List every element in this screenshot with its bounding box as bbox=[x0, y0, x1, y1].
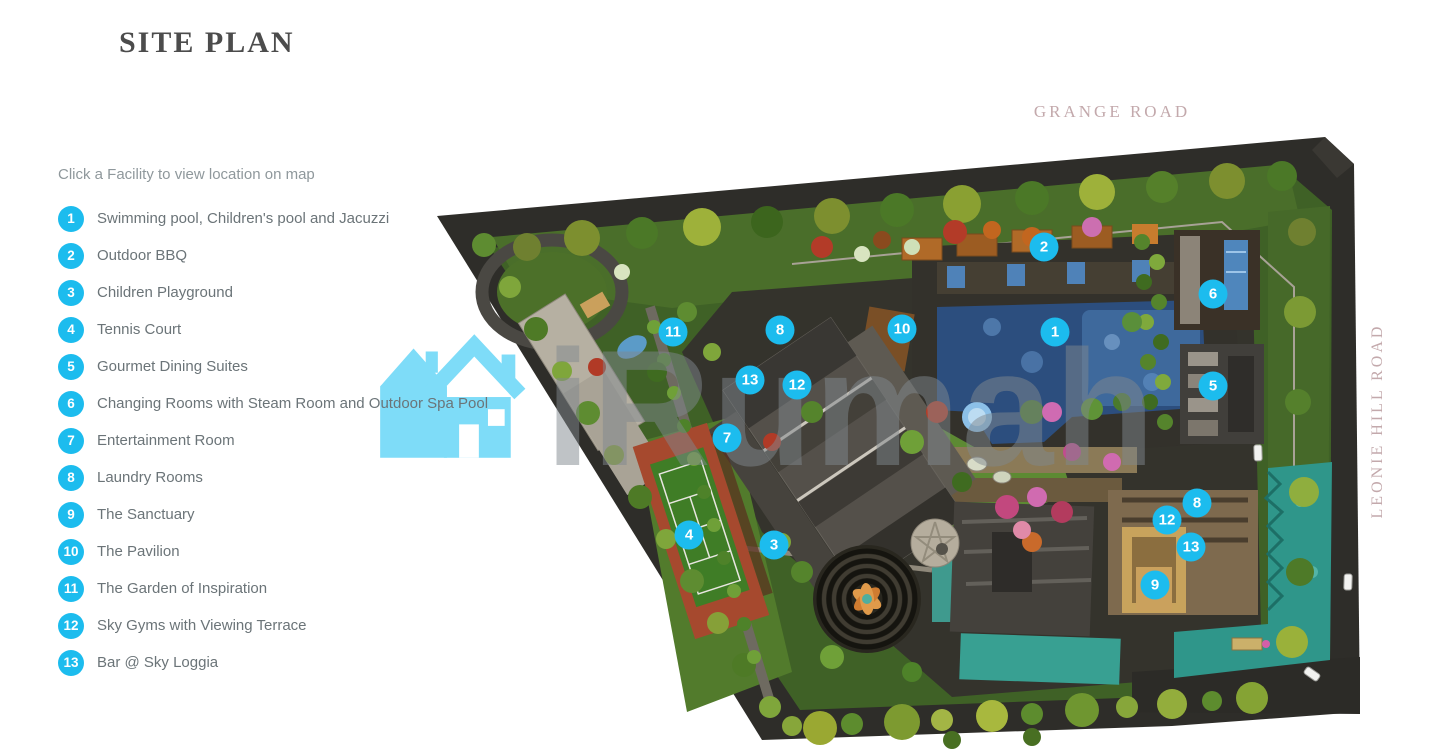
map-marker-7[interactable]: 7 bbox=[713, 424, 742, 453]
facility-label: Children Playground bbox=[97, 284, 233, 301]
map-marker-12[interactable]: 12 bbox=[783, 371, 812, 400]
facility-label: Gourmet Dining Suites bbox=[97, 358, 248, 375]
facility-item-4[interactable]: 4Tennis Court bbox=[58, 316, 528, 343]
facility-badge[interactable]: 2 bbox=[58, 243, 84, 269]
map-marker-13[interactable]: 13 bbox=[1177, 533, 1206, 562]
facility-label: The Pavilion bbox=[97, 543, 180, 560]
facility-badge[interactable]: 10 bbox=[58, 539, 84, 565]
site-plan-page: SITE PLAN Click a Facility to view locat… bbox=[0, 0, 1432, 752]
facility-item-12[interactable]: 12Sky Gyms with Viewing Terrace bbox=[58, 612, 528, 639]
facility-item-6[interactable]: 6Changing Rooms with Steam Room and Outd… bbox=[58, 390, 528, 417]
facility-label: Laundry Rooms bbox=[97, 469, 203, 486]
map-marker-6[interactable]: 6 bbox=[1199, 280, 1228, 309]
map-marker-11[interactable]: 11 bbox=[659, 318, 688, 347]
facility-badge[interactable]: 9 bbox=[58, 502, 84, 528]
map-marker-9[interactable]: 9 bbox=[1141, 571, 1170, 600]
road-label-leonie: LEONIE HILL ROAD bbox=[1369, 311, 1389, 531]
facility-label: Entertainment Room bbox=[97, 432, 235, 449]
map-marker-5[interactable]: 5 bbox=[1199, 372, 1228, 401]
facility-badge[interactable]: 7 bbox=[58, 428, 84, 454]
facility-badge[interactable]: 1 bbox=[58, 206, 84, 232]
facility-label: The Garden of Inspiration bbox=[97, 580, 267, 597]
page-title: SITE PLAN bbox=[119, 26, 295, 60]
facility-label: Tennis Court bbox=[97, 321, 181, 338]
facility-item-3[interactable]: 3Children Playground bbox=[58, 279, 528, 306]
map-marker-2[interactable]: 2 bbox=[1030, 233, 1059, 262]
facility-item-7[interactable]: 7Entertainment Room bbox=[58, 427, 528, 454]
facility-item-2[interactable]: 2Outdoor BBQ bbox=[58, 242, 528, 269]
facility-label: Sky Gyms with Viewing Terrace bbox=[97, 617, 307, 634]
facility-item-8[interactable]: 8Laundry Rooms bbox=[58, 464, 528, 491]
facility-label: Changing Rooms with Steam Room and Outdo… bbox=[97, 395, 488, 412]
facility-badge[interactable]: 11 bbox=[58, 576, 84, 602]
facility-label: Outdoor BBQ bbox=[97, 247, 187, 264]
facility-badge[interactable]: 5 bbox=[58, 354, 84, 380]
map-marker-3[interactable]: 3 bbox=[760, 531, 789, 560]
map-marker-8[interactable]: 8 bbox=[1183, 489, 1212, 518]
site-plan-map: GRANGE ROAD LEONIE HILL ROAD bbox=[432, 112, 1362, 752]
facility-badge[interactable]: 12 bbox=[58, 613, 84, 639]
marker-layer: 1234567889101112121313 bbox=[432, 112, 1362, 752]
facility-badge[interactable]: 3 bbox=[58, 280, 84, 306]
facility-list: 1Swimming pool, Children's pool and Jacu… bbox=[58, 205, 528, 676]
map-marker-8[interactable]: 8 bbox=[766, 316, 795, 345]
facility-item-10[interactable]: 10The Pavilion bbox=[58, 538, 528, 565]
facility-item-11[interactable]: 11The Garden of Inspiration bbox=[58, 575, 528, 602]
facility-label: Bar @ Sky Loggia bbox=[97, 654, 218, 671]
map-marker-4[interactable]: 4 bbox=[675, 521, 704, 550]
facility-item-9[interactable]: 9The Sanctuary bbox=[58, 501, 528, 528]
map-marker-12[interactable]: 12 bbox=[1153, 506, 1182, 535]
facility-label: The Sanctuary bbox=[97, 506, 195, 523]
facility-label: Swimming pool, Children's pool and Jacuz… bbox=[97, 210, 389, 227]
facility-panel: Click a Facility to view location on map… bbox=[58, 166, 528, 686]
map-marker-13[interactable]: 13 bbox=[736, 366, 765, 395]
facility-item-5[interactable]: 5Gourmet Dining Suites bbox=[58, 353, 528, 380]
facility-badge[interactable]: 13 bbox=[58, 650, 84, 676]
map-marker-1[interactable]: 1 bbox=[1041, 318, 1070, 347]
facility-badge[interactable]: 8 bbox=[58, 465, 84, 491]
facility-item-1[interactable]: 1Swimming pool, Children's pool and Jacu… bbox=[58, 205, 528, 232]
facility-item-13[interactable]: 13Bar @ Sky Loggia bbox=[58, 649, 528, 676]
facility-badge[interactable]: 4 bbox=[58, 317, 84, 343]
facility-instruction: Click a Facility to view location on map bbox=[58, 166, 528, 183]
facility-badge[interactable]: 6 bbox=[58, 391, 84, 417]
map-marker-10[interactable]: 10 bbox=[888, 315, 917, 344]
